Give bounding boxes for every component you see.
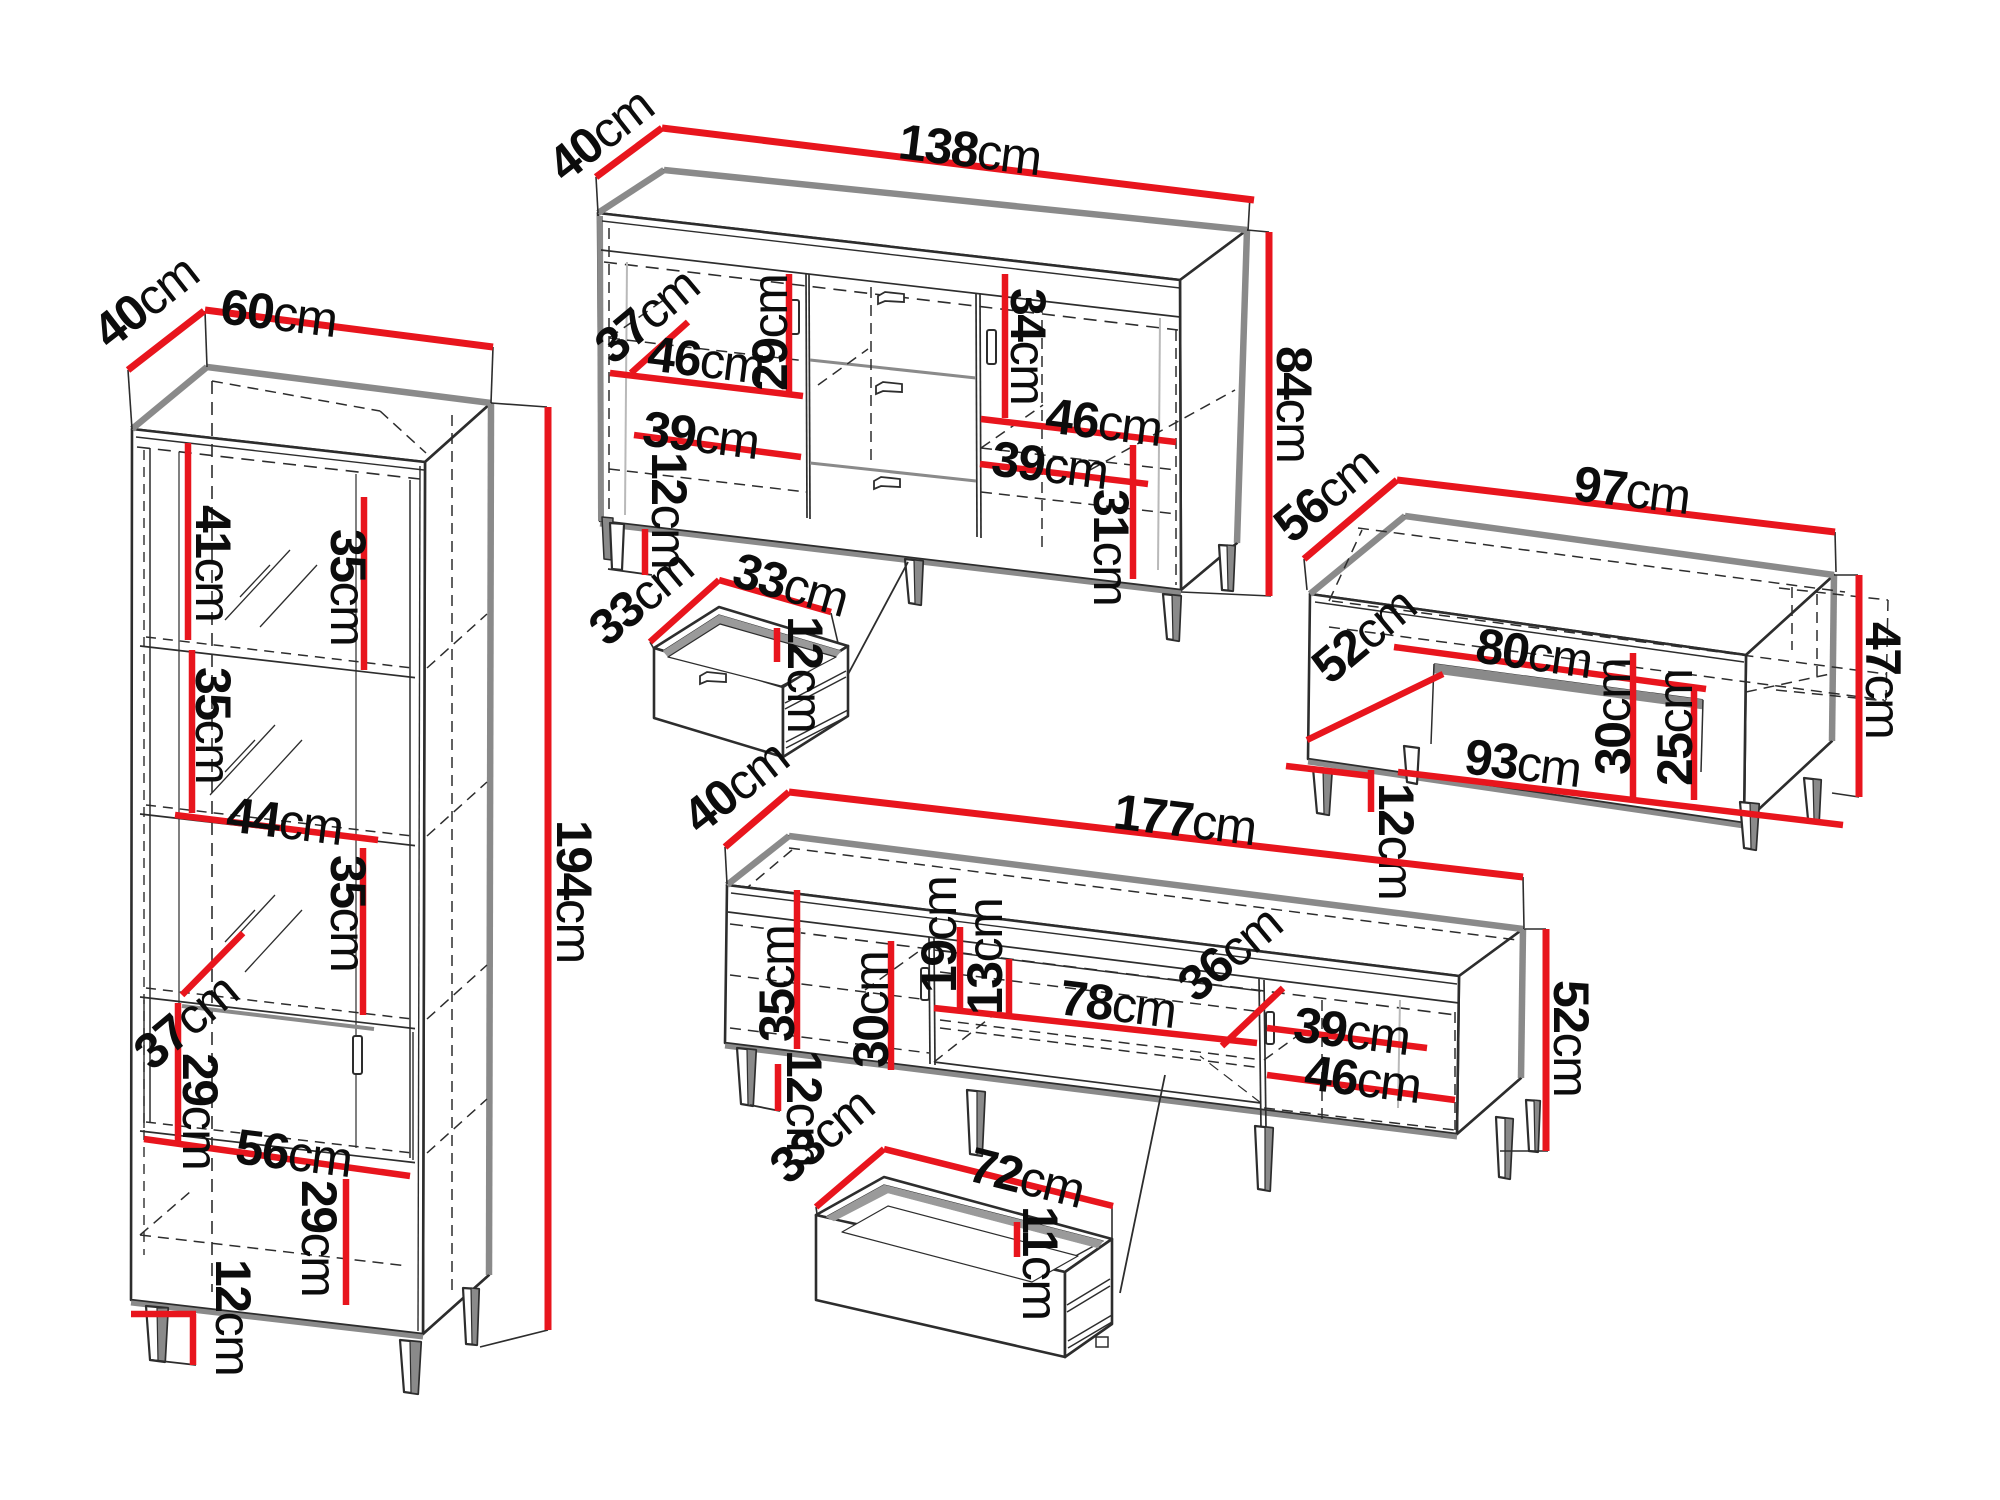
svg-text:25cm: 25cm (1647, 670, 1703, 786)
svg-text:35cm: 35cm (749, 926, 805, 1042)
svg-text:35cm: 35cm (320, 529, 376, 645)
svg-text:13cm: 13cm (957, 899, 1013, 1015)
svg-text:12cm: 12cm (1368, 783, 1424, 899)
svg-text:29cm: 29cm (291, 1180, 347, 1296)
svg-text:47cm: 47cm (1855, 622, 1911, 738)
svg-text:29cm: 29cm (742, 275, 798, 391)
svg-text:35cm: 35cm (185, 667, 241, 783)
svg-text:35cm: 35cm (320, 855, 376, 971)
svg-text:11cm: 11cm (1012, 1206, 1068, 1320)
svg-text:29cm: 29cm (172, 1053, 228, 1169)
svg-text:30cm: 30cm (1585, 659, 1641, 775)
svg-text:30cm: 30cm (843, 952, 899, 1068)
svg-text:52cm: 52cm (1543, 980, 1599, 1096)
svg-text:194cm: 194cm (546, 820, 602, 963)
svg-text:84cm: 84cm (1266, 346, 1322, 462)
svg-text:41cm: 41cm (185, 505, 241, 621)
svg-text:34cm: 34cm (1000, 288, 1056, 404)
svg-text:12cm: 12cm (777, 616, 833, 732)
svg-text:31cm: 31cm (1083, 489, 1139, 605)
svg-text:12cm: 12cm (205, 1259, 261, 1375)
